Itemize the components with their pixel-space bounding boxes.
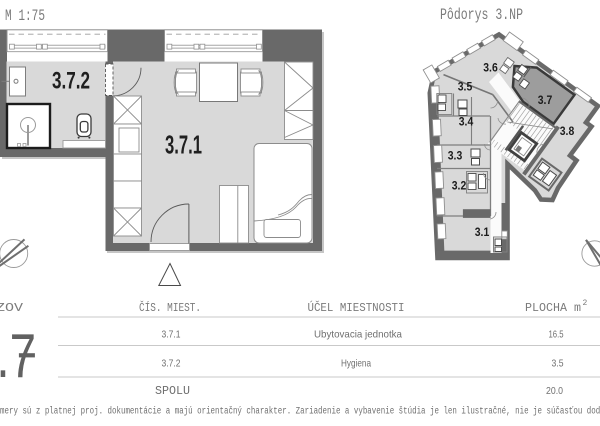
svg-text:M 1:75: M 1:75	[5, 7, 45, 25]
svg-text:Pôdorys 3.NP: Pôdorys 3.NP	[440, 6, 523, 24]
svg-text:3.7.2: 3.7.2	[52, 68, 90, 95]
svg-text:ČÍS. MIEST.: ČÍS. MIEST.	[139, 301, 201, 315]
svg-text:3.7.1: 3.7.1	[162, 329, 181, 341]
svg-text:3.7.2: 3.7.2	[162, 358, 181, 370]
svg-text:2: 2	[583, 299, 588, 308]
svg-text:NÁZOV: NÁZOV	[0, 301, 23, 315]
svg-text:3.7: 3.7	[538, 95, 553, 107]
svg-text:3.4: 3.4	[459, 117, 474, 129]
svg-text:Hygiena: Hygiena	[341, 358, 371, 370]
svg-text:3.2: 3.2	[452, 181, 467, 193]
svg-text:20.0: 20.0	[546, 385, 563, 397]
svg-text:3.5: 3.5	[552, 358, 564, 370]
svg-text:Ubytovacia jednotka: Ubytovacia jednotka	[314, 329, 402, 341]
svg-text:Rozmery sú z platnej proj. dok: Rozmery sú z platnej proj. dokumentácie …	[0, 406, 600, 418]
svg-text:3.5: 3.5	[458, 82, 473, 94]
svg-text:SPOLU: SPOLU	[155, 384, 190, 398]
svg-text:3.6: 3.6	[483, 63, 498, 75]
svg-text:ÚČEL MIESTNOSTI: ÚČEL MIESTNOSTI	[308, 301, 405, 315]
svg-text:3.3: 3.3	[448, 151, 463, 163]
svg-text:PLOCHA m: PLOCHA m	[525, 302, 581, 315]
svg-text:3.7.1: 3.7.1	[165, 132, 202, 160]
svg-text:3.8: 3.8	[560, 126, 575, 138]
svg-text:16.5: 16.5	[549, 329, 564, 341]
svg-text:3.1: 3.1	[475, 227, 490, 239]
